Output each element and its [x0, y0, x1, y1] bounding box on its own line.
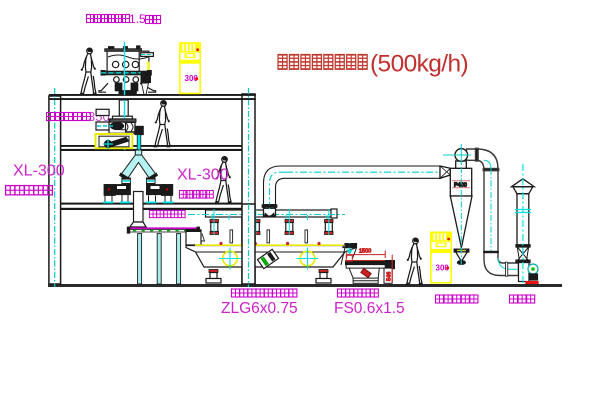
svg-text:P400: P400: [454, 182, 467, 188]
svg-text:(500kg/h): (500kg/h): [370, 51, 468, 78]
svg-text:546: 546: [387, 272, 393, 281]
svg-text:XL-300: XL-300: [177, 167, 229, 184]
svg-text:1.5: 1.5: [129, 12, 146, 26]
svg-text:ZLG6x0.75: ZLG6x0.75: [221, 300, 298, 317]
svg-text:FS0.6x1.5: FS0.6x1.5: [334, 300, 405, 317]
svg-text:1500: 1500: [359, 249, 371, 255]
svg-text:XL-300: XL-300: [13, 163, 65, 180]
